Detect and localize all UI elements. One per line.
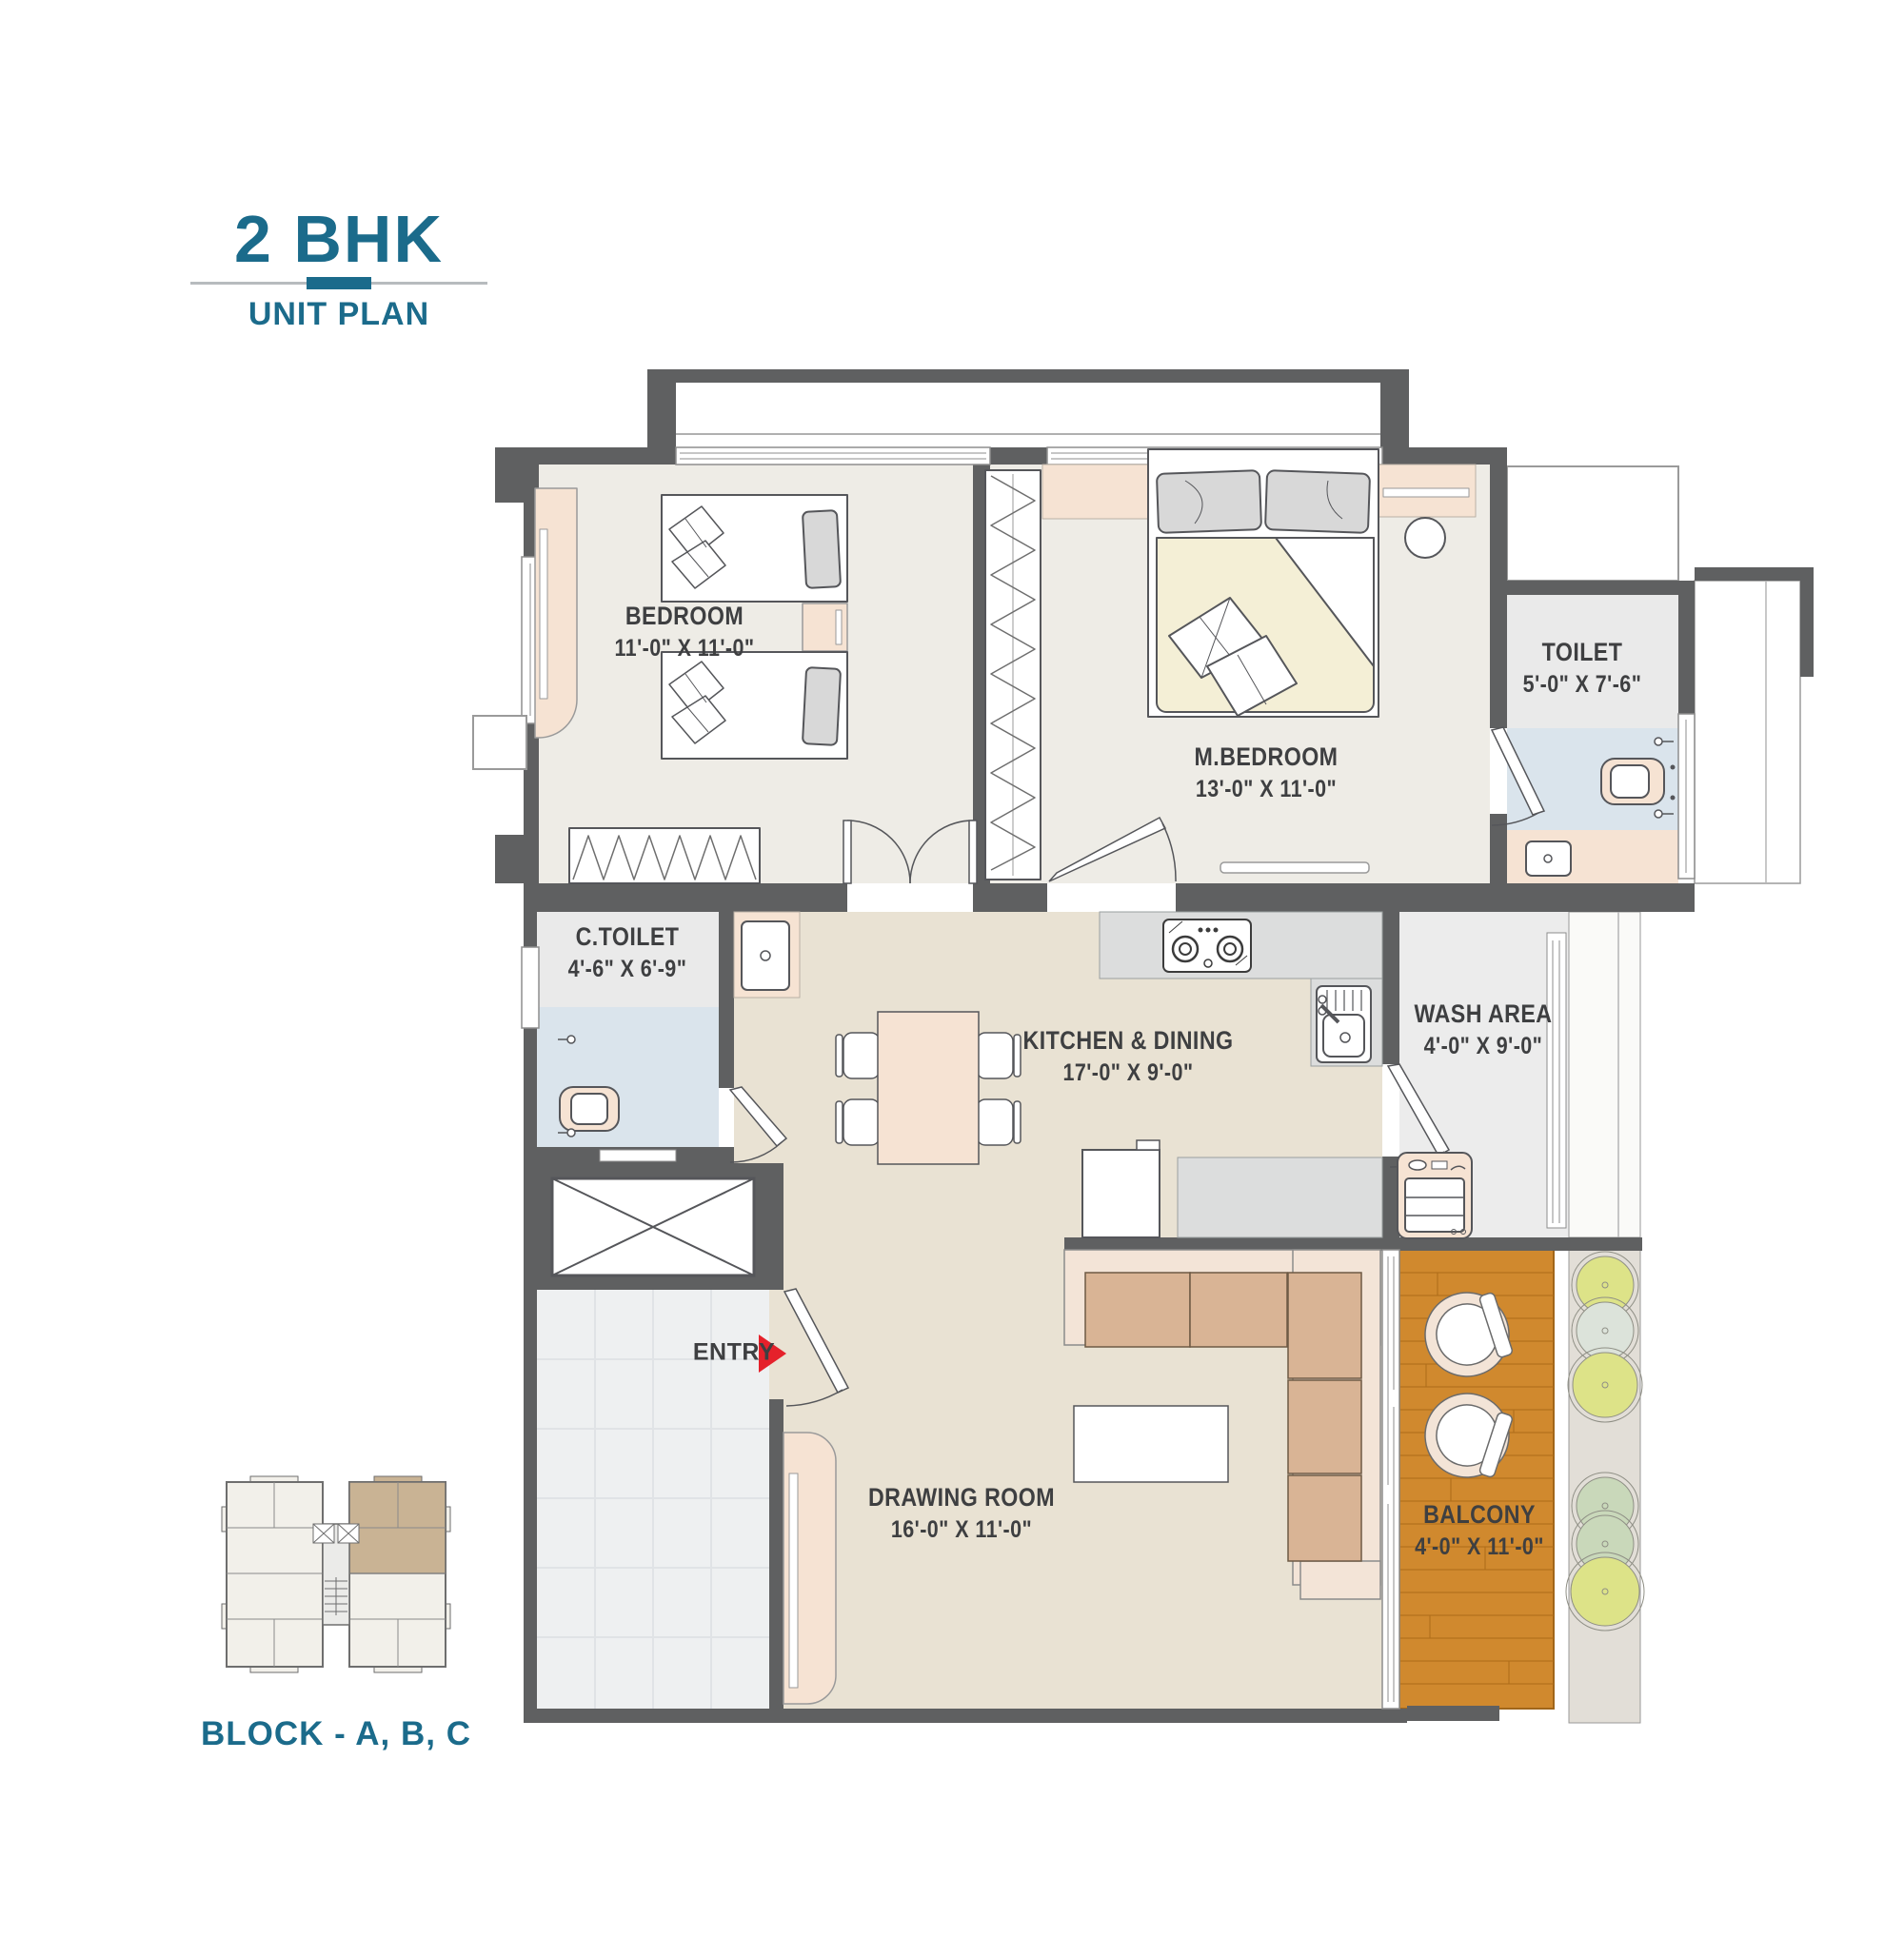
dining-table [878, 1012, 979, 1164]
master-bedroom-label: M.BEDROOM 13'-0" X 11'-0" [1182, 741, 1350, 805]
block-caption: BLOCK - A, B, C [201, 1715, 471, 1753]
toilet-label: TOILET 5'-0" X 7'-6" [1514, 636, 1652, 701]
drawing-room-label: DRAWING ROOM 16'-0" X 11'-0" [853, 1481, 1070, 1546]
elevator-shaft [552, 1178, 754, 1276]
duct-above-toilet [1507, 466, 1678, 581]
wash-area-name: WASH AREA [1415, 998, 1553, 1031]
unit-plan-page: 2 BHK UNIT PLAN BEDROOM 11'-0" X 11'-0" … [0, 0, 1904, 1938]
master-bedroom-dims: 13'-0" X 11'-0" [1195, 774, 1339, 805]
toilet-dims: 5'-0" X 7'-6" [1523, 669, 1642, 701]
bedroom-bed-1 [662, 495, 847, 602]
ctoilet-vent-window [600, 1150, 676, 1161]
bedroom-name: BEDROOM [614, 600, 754, 633]
ctoilet-name: C.TOILET [568, 920, 687, 954]
bedroom-closet [569, 828, 760, 883]
wash-basin-counter [734, 912, 800, 998]
fridge [1082, 1140, 1160, 1237]
service-strip [1569, 912, 1640, 1237]
ctoilet-dims: 4'-6" X 6'-9" [568, 954, 687, 985]
kitchen-counter-bottom [1178, 1157, 1382, 1237]
stool [1405, 518, 1445, 558]
toilet-right-window [1678, 714, 1695, 879]
drawing-room-dims: 16'-0" X 11'-0" [868, 1514, 1055, 1546]
bedroom-label: BEDROOM 11'-0" X 11'-0" [604, 600, 766, 664]
master-bed [1148, 449, 1378, 717]
bedroom-dims: 11'-0" X 11'-0" [614, 633, 754, 664]
page-subtitle: UNIT PLAN [190, 296, 487, 333]
balcony-sliding-window [1382, 1250, 1399, 1709]
washing-machine [1398, 1153, 1472, 1238]
balcony-name: BALCONY [1415, 1498, 1544, 1532]
entry-label: ENTRY [693, 1339, 775, 1367]
key-plan-diagram [222, 1476, 450, 1672]
open-strip-right [1695, 581, 1800, 883]
ctoilet-label: C.TOILET 4'-6" X 6'-9" [559, 920, 697, 985]
coffee-table [1074, 1406, 1228, 1482]
master-bedroom-name: M.BEDROOM [1195, 741, 1339, 774]
balcony-dims: 4'-0" X 11'-0" [1415, 1532, 1544, 1563]
wash-area-dims: 4'-0" X 9'-0" [1415, 1031, 1553, 1062]
ac-ledge [473, 716, 526, 769]
title-divider [190, 276, 487, 289]
page-title: 2 BHK [190, 206, 487, 272]
ctoilet-left-window [522, 947, 539, 1028]
bedroom-nightstand [803, 603, 847, 651]
kitchen-dims: 17'-0" X 9'-0" [1022, 1058, 1233, 1089]
stove [1163, 920, 1251, 972]
bedroom-bed-2 [662, 652, 847, 759]
ctoilet-wc [560, 1087, 619, 1131]
wash-sliding-door [1547, 933, 1566, 1228]
wash-area-label: WASH AREA 4'-0" X 9'-0" [1403, 998, 1564, 1062]
window-bench [1220, 862, 1369, 873]
kitchen-label: KITCHEN & DINING 17'-0" X 9'-0" [1006, 1024, 1251, 1089]
bedroom-top-window [676, 447, 990, 465]
tv-console [783, 1433, 836, 1704]
drawing-room-name: DRAWING ROOM [868, 1481, 1055, 1514]
balcony-label: BALCONY 4'-0" X 11'-0" [1404, 1498, 1555, 1563]
toilet-name: TOILET [1523, 636, 1642, 669]
plan-title-block: 2 BHK UNIT PLAN [190, 206, 487, 333]
wardrobe [985, 470, 1041, 880]
kitchen-name: KITCHEN & DINING [1022, 1024, 1233, 1058]
kitchen-sink [1317, 986, 1371, 1062]
toilet-sink [1526, 841, 1571, 876]
